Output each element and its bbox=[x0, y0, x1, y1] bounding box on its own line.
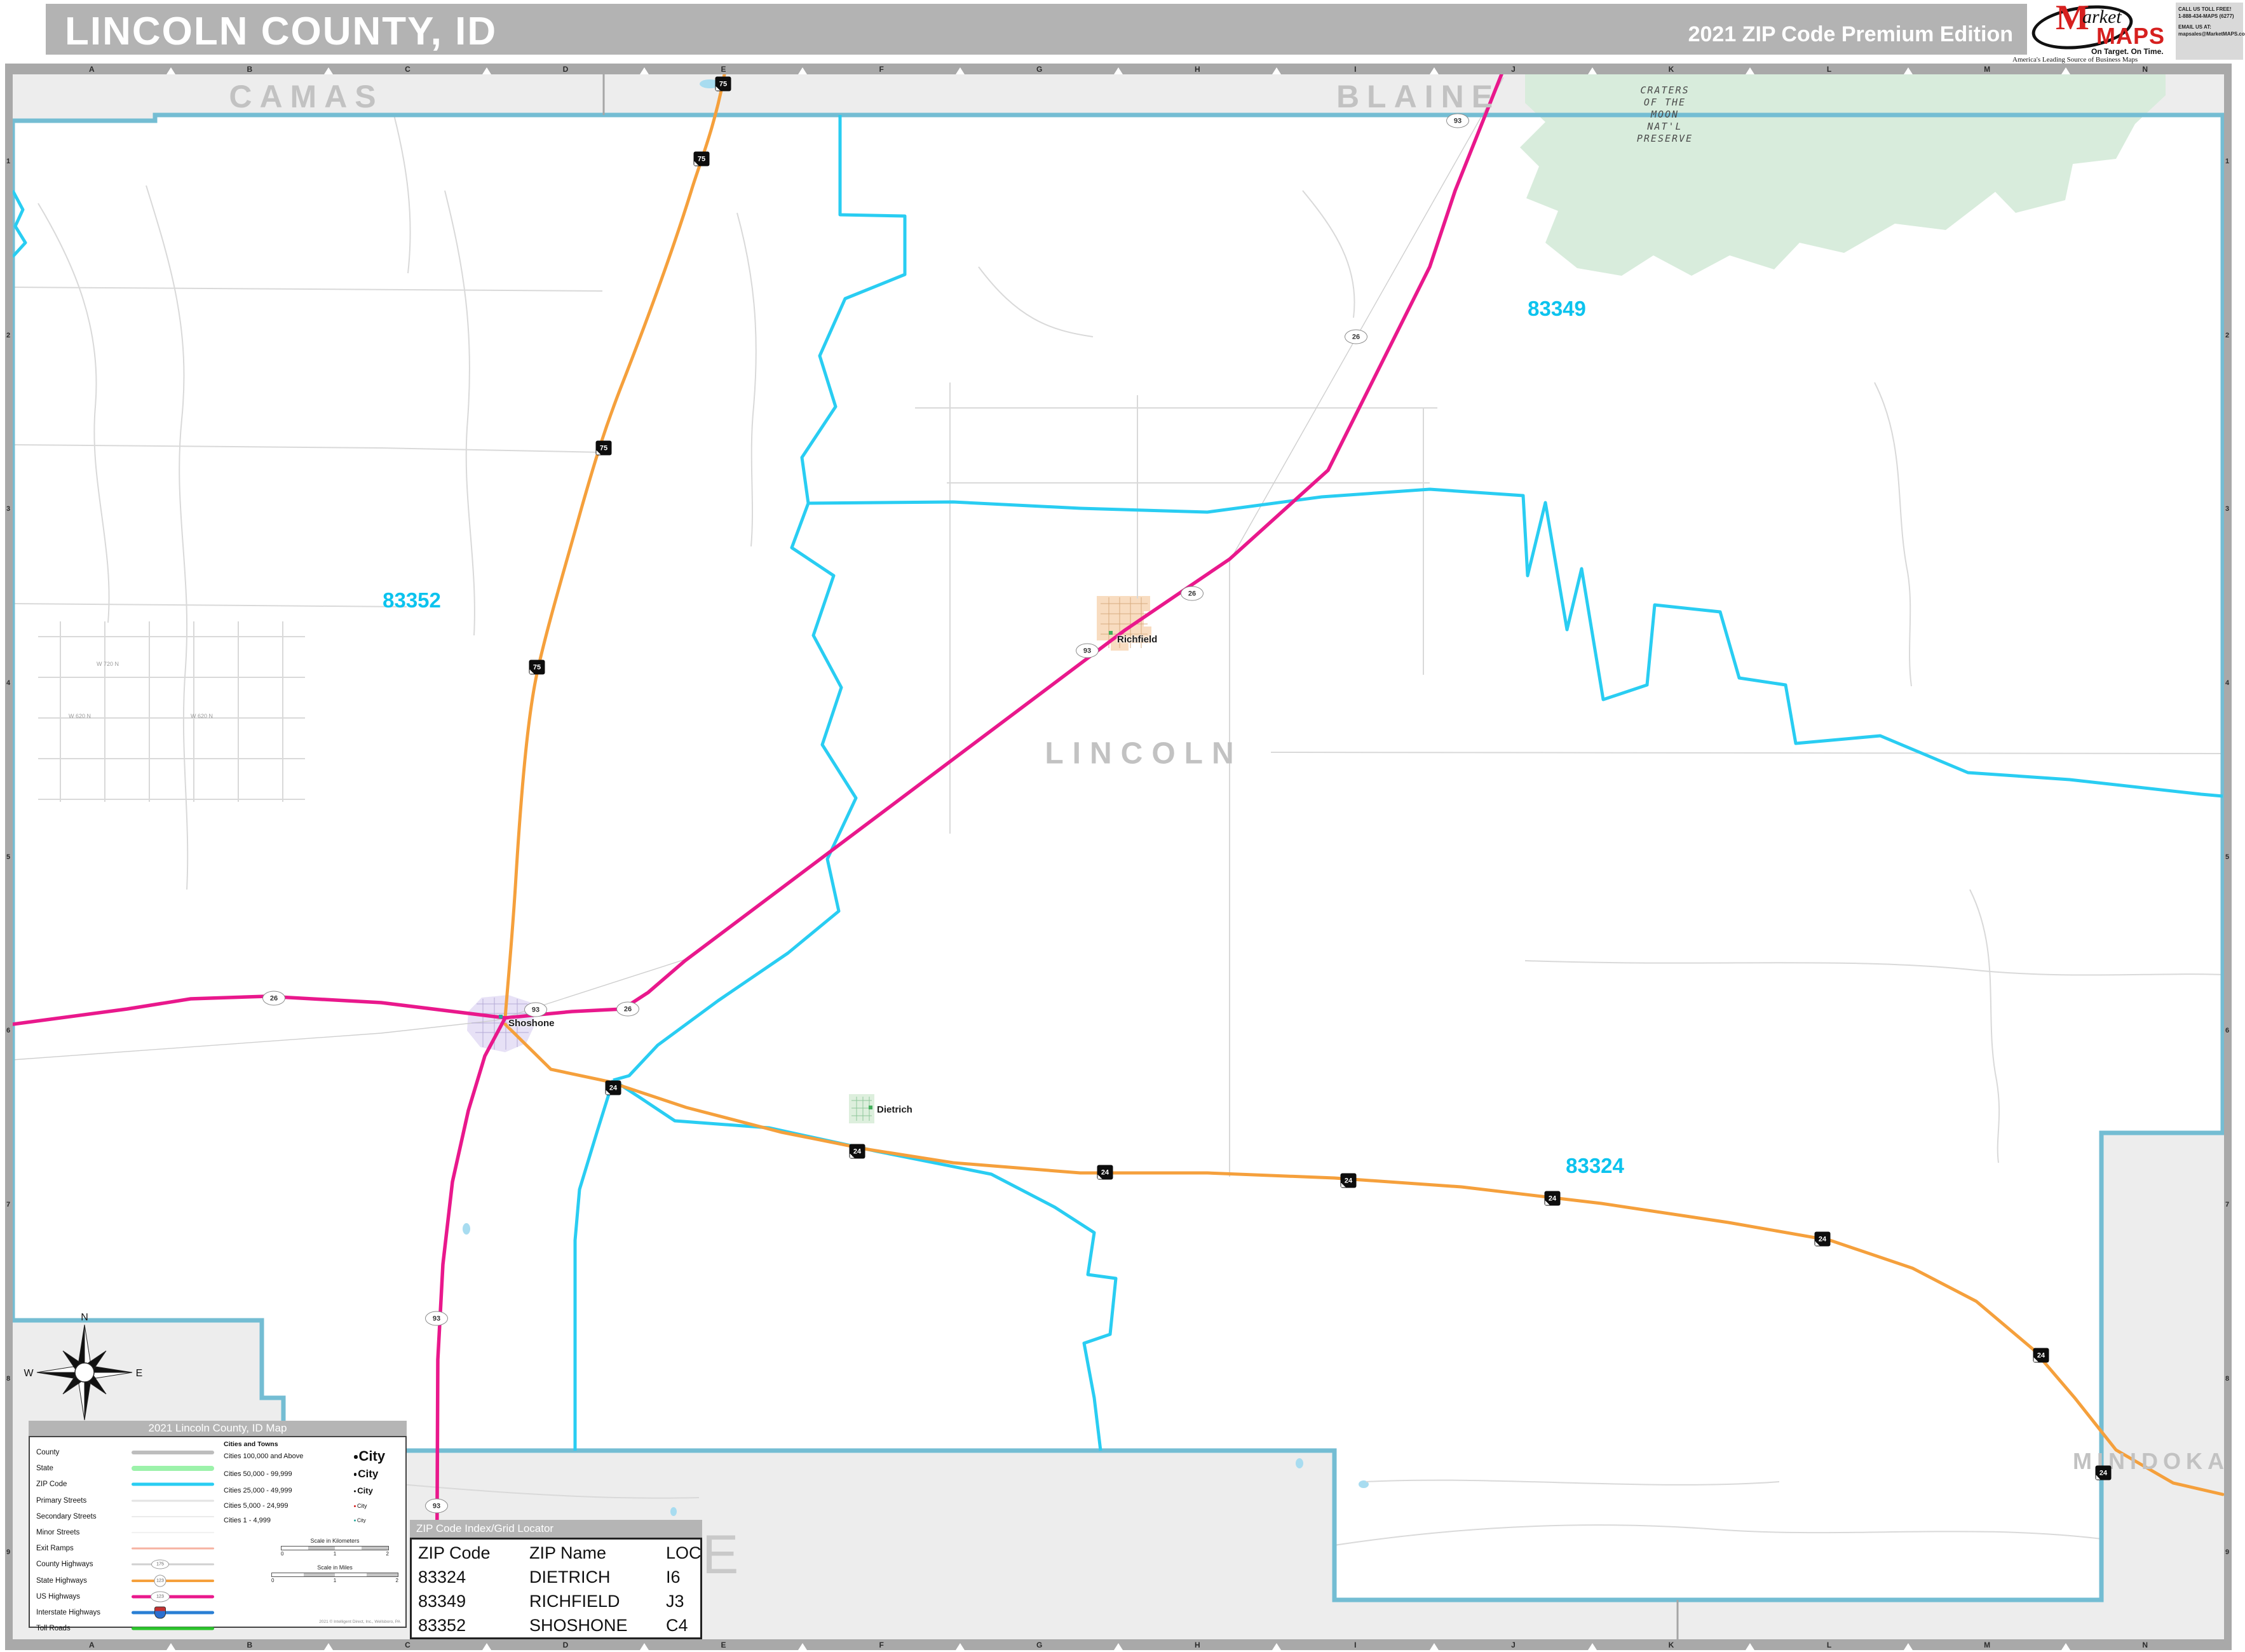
legend-footnote: 2021 © Intelligent Direct, Inc., Wellsbo… bbox=[319, 1620, 400, 1624]
legend-swatch bbox=[132, 1627, 214, 1630]
scale-tick: 2 bbox=[386, 1551, 389, 1557]
scale-bar-seg bbox=[335, 1573, 367, 1576]
page-title: LINCOLN COUNTY, ID bbox=[65, 9, 497, 54]
legend-label-exit-ramps: Exit Ramps bbox=[36, 1545, 74, 1552]
legend-badge: 123 bbox=[154, 1574, 166, 1587]
scale-tick: 1 bbox=[334, 1578, 336, 1583]
compass-n: N bbox=[81, 1312, 88, 1323]
grid-number-9: 9 bbox=[2225, 1548, 2229, 1556]
grid-number-4: 4 bbox=[2225, 679, 2229, 687]
grid-notch bbox=[640, 1643, 649, 1650]
grid-letter-E: E bbox=[721, 1641, 726, 1649]
grid-notch bbox=[1746, 67, 1754, 74]
table-header-zip-code: ZIP Code bbox=[418, 1543, 491, 1563]
grid-number-4: 4 bbox=[6, 679, 10, 687]
grid-number-2: 2 bbox=[6, 332, 10, 339]
grid-letter-A: A bbox=[89, 65, 95, 74]
grid-notch bbox=[1272, 1643, 1281, 1650]
grid-number-8: 8 bbox=[2225, 1375, 2229, 1383]
grid-notch bbox=[1430, 1643, 1439, 1650]
grid-bar-right: 123456789 bbox=[2224, 74, 2232, 1639]
legend-title: 2021 Lincoln County, ID Map bbox=[29, 1421, 407, 1436]
compass-e: E bbox=[136, 1368, 143, 1379]
legend-label-primary-streets: Primary Streets bbox=[36, 1497, 86, 1505]
grid-notch bbox=[798, 67, 807, 74]
grid-notch bbox=[1746, 1643, 1754, 1650]
grid-letter-F: F bbox=[879, 1641, 883, 1649]
zip-index-title: ZIP Code Index/Grid Locator bbox=[410, 1520, 702, 1538]
grid-notch bbox=[166, 1643, 175, 1650]
map-page: LINCOLN COUNTY, ID 2021 ZIP Code Premium… bbox=[0, 0, 2245, 1652]
city-class-label-2: Cities 25,000 - 49,999 bbox=[224, 1487, 292, 1494]
grid-letter-J: J bbox=[1511, 65, 1516, 74]
grid-notch bbox=[1272, 67, 1281, 74]
legend-swatch bbox=[132, 1483, 214, 1486]
legend-label-zip-code: ZIP Code bbox=[36, 1480, 67, 1488]
legend-swatch bbox=[132, 1595, 214, 1598]
preserve-line: PRESERVE bbox=[1637, 133, 1693, 145]
legend-swatch bbox=[132, 1580, 214, 1582]
legend-swatch bbox=[132, 1451, 214, 1454]
grid-letter-I: I bbox=[1354, 1641, 1356, 1649]
grid-number-8: 8 bbox=[6, 1375, 10, 1383]
scale-bar-seg bbox=[308, 1547, 335, 1550]
grid-notch bbox=[798, 1643, 807, 1650]
legend-swatch bbox=[132, 1466, 214, 1471]
grid-notch bbox=[1588, 1643, 1597, 1650]
grid-letter-G: G bbox=[1036, 1641, 1042, 1649]
table-cell: SHOSHONE bbox=[529, 1616, 628, 1635]
grid-notch bbox=[482, 1643, 491, 1650]
zip-index-table: ZIP CodeZIP NameLOC83324DIETRICHI683349R… bbox=[410, 1538, 702, 1639]
city-sample-dot bbox=[354, 1520, 356, 1522]
compass-w: W bbox=[24, 1368, 34, 1379]
grid-letter-M: M bbox=[1984, 65, 1990, 74]
legend-label-state: State bbox=[36, 1465, 53, 1472]
grid-letter-N: N bbox=[2142, 65, 2148, 74]
city-class-sample-4: City bbox=[354, 1518, 366, 1524]
table-cell: I6 bbox=[666, 1567, 681, 1587]
table-cell: J3 bbox=[666, 1592, 684, 1611]
legend-badge bbox=[154, 1607, 166, 1619]
grid-letter-C: C bbox=[405, 1641, 410, 1649]
cities-and-towns-header: Cities and Towns bbox=[224, 1440, 278, 1448]
contact-line-3: mapsales@MarketMAPS.com bbox=[2178, 30, 2241, 37]
grid-notch bbox=[640, 67, 649, 74]
table-cell: 83324 bbox=[418, 1567, 466, 1587]
scale-tick: 0 bbox=[271, 1578, 274, 1583]
grid-notch bbox=[956, 1643, 965, 1650]
legend-label-state-highways: State Highways bbox=[36, 1577, 87, 1585]
grid-number-1: 1 bbox=[2225, 158, 2229, 165]
table-cell: 83352 bbox=[418, 1616, 466, 1635]
legend-swatch bbox=[132, 1532, 214, 1533]
scale-bar-seg bbox=[362, 1547, 388, 1550]
grid-number-6: 6 bbox=[2225, 1027, 2229, 1034]
grid-letter-I: I bbox=[1354, 65, 1356, 74]
grid-letter-F: F bbox=[879, 65, 883, 74]
table-cell: 83349 bbox=[418, 1592, 466, 1611]
grid-letter-D: D bbox=[563, 1641, 569, 1649]
scale-label-1: Scale in Miles bbox=[271, 1564, 398, 1571]
scale-bar-1 bbox=[271, 1573, 398, 1577]
scale-bar-seg bbox=[281, 1547, 308, 1550]
preserve-line: CRATERS bbox=[1637, 85, 1693, 97]
grid-notch bbox=[1430, 67, 1439, 74]
city-class-label-3: Cities 5,000 - 24,999 bbox=[224, 1502, 288, 1510]
legend-badge: 123 bbox=[151, 1591, 170, 1602]
grid-number-9: 9 bbox=[6, 1548, 10, 1556]
logo-subtitle: America's Leading Source of Business Map… bbox=[2012, 56, 2138, 64]
grid-number-7: 7 bbox=[2225, 1201, 2229, 1209]
grid-letter-C: C bbox=[405, 65, 410, 74]
table-header-loc: LOC bbox=[666, 1543, 702, 1563]
grid-notch bbox=[956, 67, 965, 74]
scale-ticks-1: 012 bbox=[271, 1578, 398, 1583]
grid-notch bbox=[482, 67, 491, 74]
grid-letter-B: B bbox=[247, 1641, 253, 1649]
grid-number-3: 3 bbox=[6, 505, 10, 513]
scale-bar-seg bbox=[335, 1547, 362, 1550]
grid-letter-D: D bbox=[563, 65, 569, 74]
scale-bar-seg bbox=[272, 1573, 304, 1576]
grid-number-5: 5 bbox=[2225, 853, 2229, 861]
city-class-sample-3: City bbox=[354, 1503, 367, 1509]
scale-tick: 0 bbox=[281, 1551, 283, 1557]
scale-bar-seg bbox=[304, 1573, 336, 1576]
grid-letter-H: H bbox=[1195, 65, 1200, 74]
grid-notch bbox=[1588, 67, 1597, 74]
scale-label-0: Scale in Kilometers bbox=[281, 1538, 389, 1544]
grid-notch bbox=[1114, 1643, 1123, 1650]
grid-letter-E: E bbox=[721, 65, 726, 74]
city-class-sample-2: City bbox=[354, 1486, 373, 1496]
grid-letter-K: K bbox=[1669, 65, 1674, 74]
grid-letter-L: L bbox=[1827, 1641, 1831, 1649]
legend-box: Cities and Towns 2021 © Intelligent Dire… bbox=[29, 1436, 407, 1628]
header-band: LINCOLN COUNTY, ID 2021 ZIP Code Premium… bbox=[46, 4, 2027, 55]
grid-bar-bottom: ABCDEFGHIJKLMN bbox=[5, 1639, 2232, 1650]
grid-notch bbox=[1114, 67, 1123, 74]
legend-label-minor-streets: Minor Streets bbox=[36, 1529, 79, 1536]
grid-letter-M: M bbox=[1984, 1641, 1990, 1649]
grid-letter-K: K bbox=[1669, 1641, 1674, 1649]
scale-tick: 1 bbox=[334, 1551, 336, 1557]
contact-line-1: 1-888-434-MAPS (6277) bbox=[2178, 13, 2241, 20]
city-sample-dot bbox=[354, 1473, 356, 1475]
map-canvas: N E S W bbox=[0, 0, 2245, 1652]
table-cell: DIETRICH bbox=[529, 1567, 611, 1587]
preserve-label: CRATERSOF THEMOONNAT'LPRESERVE bbox=[1637, 85, 1693, 145]
scale-tick: 2 bbox=[396, 1578, 398, 1583]
dietrich-urban-area bbox=[849, 1094, 874, 1123]
legend-swatch bbox=[132, 1611, 214, 1615]
grid-notch bbox=[2061, 1643, 2070, 1650]
grid-letter-L: L bbox=[1827, 65, 1831, 74]
grid-letter-N: N bbox=[2142, 1641, 2148, 1649]
city-class-label-1: Cities 50,000 - 99,999 bbox=[224, 1470, 292, 1478]
grid-number-7: 7 bbox=[6, 1201, 10, 1209]
contact-line-0: CALL US TOLL FREE! bbox=[2178, 6, 2241, 13]
legend-label-toll-roads: Toll Roads bbox=[36, 1625, 71, 1632]
city-class-label-4: Cities 1 - 4,999 bbox=[224, 1517, 271, 1524]
logo-tagline: On Target. On Time. bbox=[2091, 47, 2164, 56]
grid-letter-J: J bbox=[1511, 1641, 1516, 1649]
scale-bar-seg bbox=[367, 1573, 398, 1576]
city-class-label-0: Cities 100,000 and Above bbox=[224, 1452, 303, 1460]
grid-notch bbox=[324, 1643, 333, 1650]
logo-maps: MAPS bbox=[2096, 23, 2165, 50]
legend-swatch bbox=[132, 1500, 214, 1501]
grid-number-1: 1 bbox=[6, 158, 10, 165]
preserve-line: NAT'L bbox=[1637, 121, 1693, 133]
city-sample-dot bbox=[354, 1455, 358, 1459]
table-header-zip-name: ZIP Name bbox=[529, 1543, 606, 1563]
grid-number-2: 2 bbox=[2225, 332, 2229, 339]
grid-notch bbox=[166, 67, 175, 74]
grid-letter-B: B bbox=[247, 65, 253, 74]
city-class-sample-0: City bbox=[354, 1448, 385, 1465]
city-class-sample-1: City bbox=[354, 1468, 378, 1480]
grid-notch bbox=[2061, 67, 2070, 74]
legend-label-county-highways: County Highways bbox=[36, 1561, 93, 1568]
legend-label-secondary-streets: Secondary Streets bbox=[36, 1513, 97, 1520]
grid-bar-top: ABCDEFGHIJKLMN bbox=[5, 64, 2232, 74]
legend-swatch bbox=[132, 1516, 214, 1517]
grid-notch bbox=[1904, 67, 1913, 74]
grid-number-6: 6 bbox=[6, 1027, 10, 1034]
table-cell: RICHFIELD bbox=[529, 1592, 620, 1611]
grid-notch bbox=[324, 67, 333, 74]
marketmaps-logo: M arket MAPS On Target. On Time. America… bbox=[2030, 0, 2171, 62]
edition-label: 2021 ZIP Code Premium Edition bbox=[1688, 22, 2013, 47]
grid-bar-left: 123456789 bbox=[5, 74, 13, 1639]
legend-badge: 175 bbox=[151, 1560, 169, 1569]
preserve-line: OF THE bbox=[1637, 97, 1693, 109]
grid-letter-G: G bbox=[1036, 65, 1042, 74]
city-sample-dot bbox=[354, 1505, 356, 1507]
grid-letter-H: H bbox=[1195, 1641, 1200, 1649]
contact-line-2: EMAIL US AT: bbox=[2178, 24, 2241, 30]
legend-label-interstate-highways: Interstate Highways bbox=[36, 1609, 100, 1616]
grid-notch bbox=[1904, 1643, 1913, 1650]
city-sample-dot bbox=[354, 1490, 356, 1492]
legend-label-county: County bbox=[36, 1449, 59, 1456]
legend-swatch bbox=[132, 1564, 214, 1566]
scale-ticks-0: 012 bbox=[281, 1551, 389, 1557]
preserve-line: MOON bbox=[1637, 109, 1693, 121]
grid-number-5: 5 bbox=[6, 853, 10, 861]
table-cell: C4 bbox=[666, 1616, 688, 1635]
grid-letter-A: A bbox=[89, 1641, 95, 1649]
legend-swatch bbox=[132, 1548, 214, 1550]
lincoln-county-fill bbox=[13, 115, 2223, 1600]
grid-number-3: 3 bbox=[2225, 505, 2229, 513]
contact-box: CALL US TOLL FREE!1-888-434-MAPS (6277)E… bbox=[2176, 3, 2243, 60]
scale-bar-0 bbox=[281, 1546, 389, 1550]
legend-label-us-highways: US Highways bbox=[36, 1593, 80, 1601]
